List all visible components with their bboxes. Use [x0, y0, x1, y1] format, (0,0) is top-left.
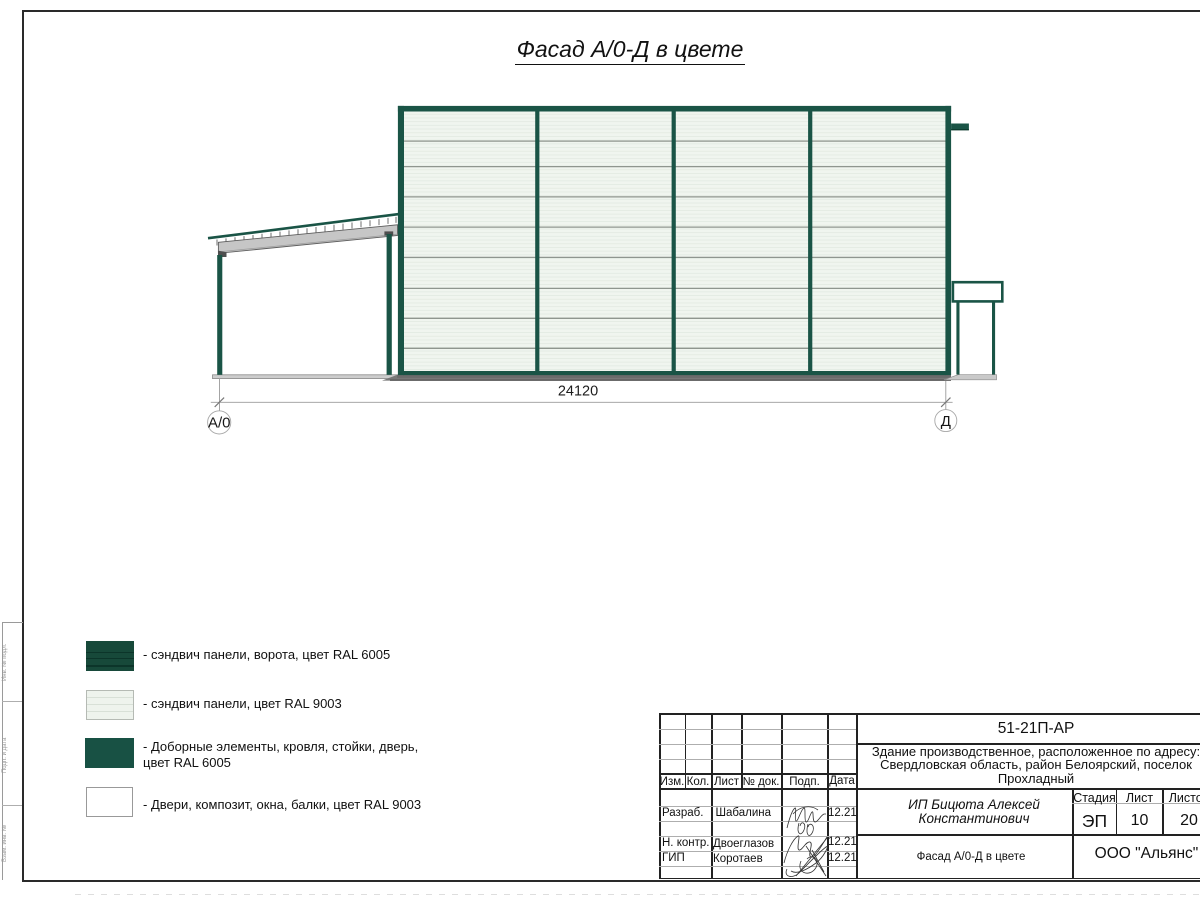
svg-text:А/0: А/0	[208, 415, 231, 432]
svg-text:24120: 24120	[558, 384, 598, 400]
svg-text:Д: Д	[941, 413, 951, 430]
